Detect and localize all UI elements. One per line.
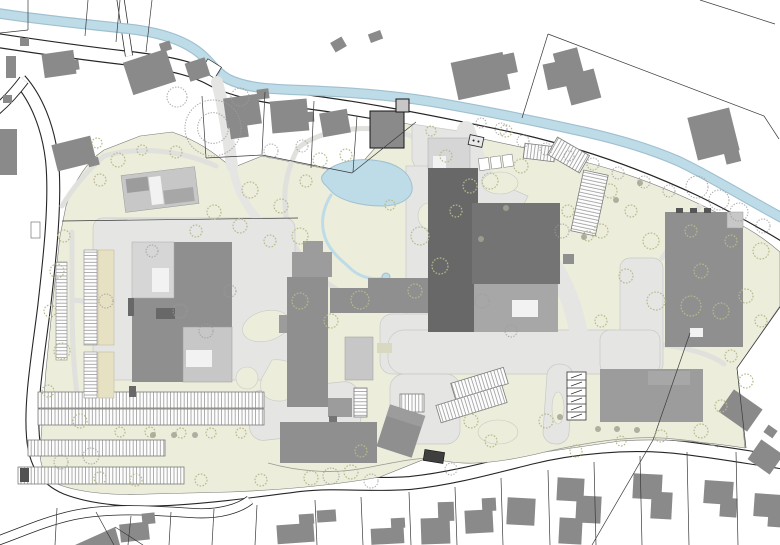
offsite-house — [438, 502, 455, 522]
parking-row — [18, 467, 184, 484]
pergola-strip — [84, 352, 97, 398]
bush-icon — [614, 426, 620, 432]
site-plan-canvas — [0, 0, 780, 545]
offsite-house — [506, 497, 535, 525]
parking-row — [28, 440, 165, 456]
offsite-house — [319, 109, 351, 137]
bush-icon — [634, 427, 640, 433]
bush-icon — [557, 414, 563, 420]
bush-icon — [150, 432, 156, 438]
parking-row — [38, 409, 264, 425]
bush-icon — [478, 236, 484, 242]
site-plan-svg — [0, 0, 780, 545]
offsite-house — [6, 56, 16, 78]
bush-icon — [637, 180, 643, 186]
building-east — [665, 208, 743, 347]
offsite-house — [317, 509, 337, 522]
offsite-house — [464, 509, 493, 533]
offsite-house — [276, 523, 314, 545]
offsite-house — [391, 518, 406, 529]
offsite-house — [3, 95, 12, 103]
offsite-house — [650, 491, 672, 519]
offsite-house — [256, 88, 269, 100]
offsite-house — [141, 512, 155, 524]
offsite-house — [421, 518, 451, 545]
offsite-house — [719, 497, 737, 517]
building-southeast — [600, 369, 703, 422]
transformer-box-icon — [20, 468, 29, 482]
offsite-house — [20, 38, 29, 46]
canopy — [377, 343, 392, 353]
offsite-house — [302, 111, 315, 122]
offsite-house — [223, 94, 262, 129]
east-connector — [600, 330, 660, 374]
offsite-house — [767, 509, 780, 527]
offsite-house — [69, 59, 79, 70]
bush-icon — [503, 205, 509, 211]
offsite-house — [299, 513, 315, 524]
pergola-strip — [84, 250, 97, 345]
parking-row — [38, 392, 264, 408]
bush-icon — [581, 234, 587, 240]
offsite-house — [0, 129, 17, 175]
offsite-house — [558, 517, 582, 544]
bush-icon — [595, 426, 601, 432]
offsite-house — [482, 498, 497, 512]
bush-icon — [192, 432, 198, 438]
shed — [31, 222, 40, 238]
bush-icon — [613, 197, 619, 203]
bush-icon — [171, 432, 177, 438]
parking-row — [354, 388, 367, 417]
planting-strip — [98, 352, 114, 398]
offsite-house — [371, 527, 405, 545]
